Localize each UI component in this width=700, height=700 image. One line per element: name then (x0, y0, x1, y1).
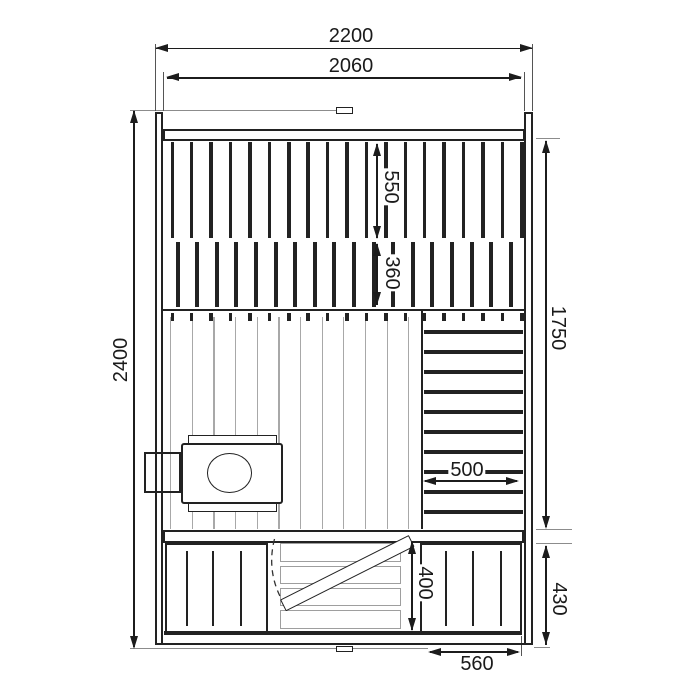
slat-gap (489, 242, 493, 307)
slat-gap (481, 142, 485, 238)
arrowhead (428, 648, 441, 656)
dim-line-upper-panel (376, 144, 378, 238)
panel-joint-line (387, 317, 388, 529)
dim-label-middle-panel: 360 (382, 254, 402, 291)
slat-stub (287, 313, 291, 321)
slat-gap (215, 242, 219, 307)
dim-line-backrest-width (425, 480, 517, 482)
backrest-board-gap (424, 410, 524, 414)
right-bench-board-gap (500, 551, 502, 626)
slat-gap (501, 142, 505, 238)
slat-gap (190, 142, 194, 238)
arrowhead (542, 516, 550, 529)
dim-line-overall-height (133, 111, 135, 647)
left-bench-board-gap (186, 551, 188, 626)
stove-door-oval (207, 453, 252, 493)
arrowhead (423, 477, 436, 485)
backrest-board-gap (424, 490, 524, 494)
left-bench-board-gap (212, 551, 214, 626)
panel-divider-line (163, 309, 524, 311)
slat-gap (254, 242, 258, 307)
slat-stub (209, 313, 213, 321)
backrest-board-gap (424, 350, 524, 354)
slat-gap (430, 242, 434, 307)
arrowhead (542, 140, 550, 153)
right-bench-board-gap (445, 551, 447, 626)
dim-line-inner-width (167, 77, 521, 79)
panel-joint-line (408, 317, 409, 529)
dim-line-bench-height (545, 546, 547, 645)
left-bench-front (165, 543, 268, 633)
arrowhead (509, 73, 522, 81)
dim-label-overall-width: 2200 (327, 26, 376, 46)
panel-joint-line (322, 317, 323, 529)
slat-gap (352, 242, 356, 307)
dim-label-wall-height: 1750 (548, 304, 568, 353)
slat-gap (470, 242, 474, 307)
bench-top-board (163, 530, 524, 544)
slat-gap (450, 242, 454, 307)
slat-gap (332, 242, 336, 307)
dim-line-overall-width (156, 48, 532, 50)
backrest-board-gap (424, 430, 524, 434)
backrest-left-edge (421, 310, 423, 529)
dim-label-upper-panel: 550 (381, 168, 401, 205)
dim-label-bench-width: 560 (458, 654, 495, 674)
slat-gap (404, 142, 408, 238)
right-bench-board-gap (472, 551, 474, 626)
ground-extension-line (130, 648, 428, 649)
slat-gap (411, 242, 415, 307)
slat-stub (365, 313, 369, 321)
slat-gap (234, 242, 238, 307)
arrowhead (507, 648, 520, 656)
slat-gap (209, 142, 213, 238)
slat-gap (229, 142, 233, 238)
backrest-board-gap (424, 510, 524, 514)
dim-label-hatch-height: 400 (415, 564, 435, 601)
arrowhead (373, 243, 381, 256)
slat-stub (462, 313, 466, 321)
arrowhead (506, 477, 519, 485)
slat-gap (293, 242, 297, 307)
extension-line-2200-right (532, 44, 533, 111)
arrowhead (408, 618, 416, 631)
extension-line-430-bottom (534, 647, 550, 648)
slat-gap (509, 242, 513, 307)
slat-gap (195, 242, 199, 307)
slat-gap (326, 142, 330, 238)
extension-line-2060-right (524, 72, 525, 111)
slat-stub (229, 313, 233, 321)
slat-stub (268, 313, 272, 321)
bottom-vent-tab (336, 646, 353, 653)
technical-drawing-sauna-front: 2200 2060 2400 1750 430 550 360 500 400 … (0, 0, 700, 700)
slat-stub (481, 313, 485, 321)
slat-stub (306, 313, 310, 321)
slat-gap (176, 242, 180, 307)
slat-stub (248, 313, 252, 321)
extension-line-top-left (130, 110, 337, 111)
arrowhead (542, 632, 550, 645)
slat-stub (190, 313, 194, 321)
panel-joint-line (170, 317, 171, 529)
left-bench-board-gap (240, 551, 242, 626)
panel-joint-line (343, 317, 344, 529)
slat-gap (306, 142, 310, 238)
arrowhead (130, 110, 138, 123)
slat-stub (442, 313, 446, 321)
dim-label-backrest-width: 500 (448, 460, 485, 480)
slat-stub (423, 313, 427, 321)
hatch-swing-arc (260, 535, 290, 605)
extension-line-2060-left (163, 72, 164, 111)
dim-label-bench-height: 430 (549, 580, 569, 617)
arrowhead (373, 226, 381, 239)
slat-gap (287, 142, 291, 238)
arrowhead (542, 545, 550, 558)
panel-joint-line (365, 317, 366, 529)
dim-line-hatch-height (411, 542, 413, 630)
slat-stub (501, 313, 505, 321)
slat-stub (404, 313, 408, 321)
panel-joint-line (300, 317, 301, 529)
dim-label-overall-height: 2400 (111, 336, 131, 385)
slat-stub (171, 313, 175, 321)
slat-stub (384, 313, 388, 321)
top-vent-tab (336, 107, 353, 114)
arrowhead (166, 73, 179, 81)
backrest-board-gap (424, 330, 524, 334)
arrowhead (408, 541, 416, 554)
backrest-board-gap (424, 370, 524, 374)
slat-gap (274, 242, 278, 307)
backrest-board-gap (424, 450, 524, 454)
left-wall-post (155, 112, 163, 645)
slat-stub (345, 313, 349, 321)
slat-gap (313, 242, 317, 307)
arrowhead (373, 292, 381, 305)
slat-gap (462, 142, 466, 238)
extension-line-560-right (521, 636, 522, 656)
right-wall-post (524, 112, 533, 645)
stove-air-duct (144, 452, 181, 494)
slat-stub (326, 313, 330, 321)
top-trim-board (163, 129, 525, 141)
slat-gap (442, 142, 446, 238)
slat-gap (365, 142, 369, 238)
slat-gap (171, 142, 175, 238)
backrest-board-gap (424, 390, 524, 394)
slat-gap (248, 142, 252, 238)
slat-gap (423, 142, 427, 238)
arrowhead (520, 44, 533, 52)
bench-base-line (164, 631, 522, 635)
extension-line-2200-left (155, 44, 156, 111)
slat-gap (268, 142, 272, 238)
dim-label-inner-width: 2060 (327, 56, 376, 76)
arrowhead (155, 44, 168, 52)
arrowhead (130, 636, 138, 649)
hatch-plank (280, 610, 401, 629)
slat-gap (345, 142, 349, 238)
arrowhead (373, 143, 381, 156)
